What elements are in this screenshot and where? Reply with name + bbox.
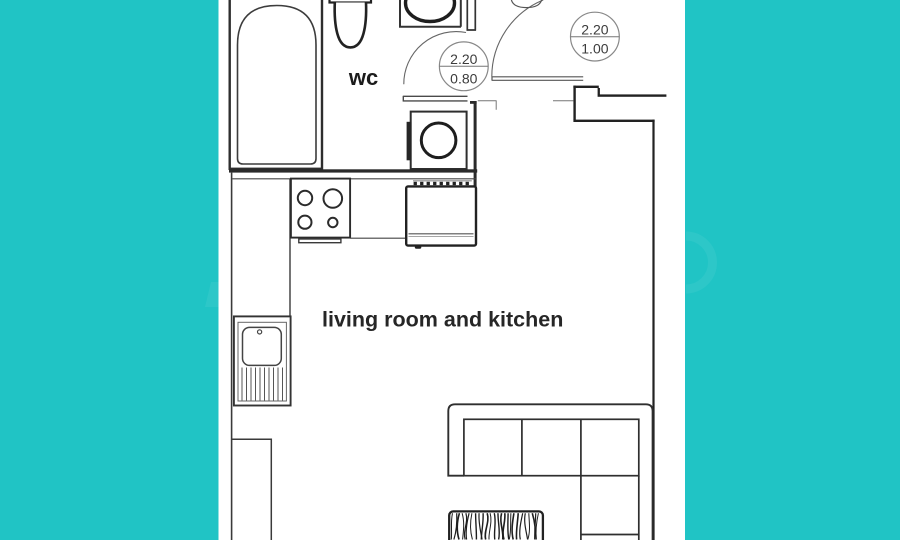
svg-text:2.20: 2.20 <box>450 51 477 67</box>
svg-text:wc: wc <box>348 65 378 90</box>
svg-text:0.80: 0.80 <box>450 70 477 86</box>
svg-text:2.20: 2.20 <box>581 21 608 37</box>
svg-text:1.00: 1.00 <box>581 40 608 56</box>
svg-text:living room and kitchen: living room and kitchen <box>322 308 563 332</box>
